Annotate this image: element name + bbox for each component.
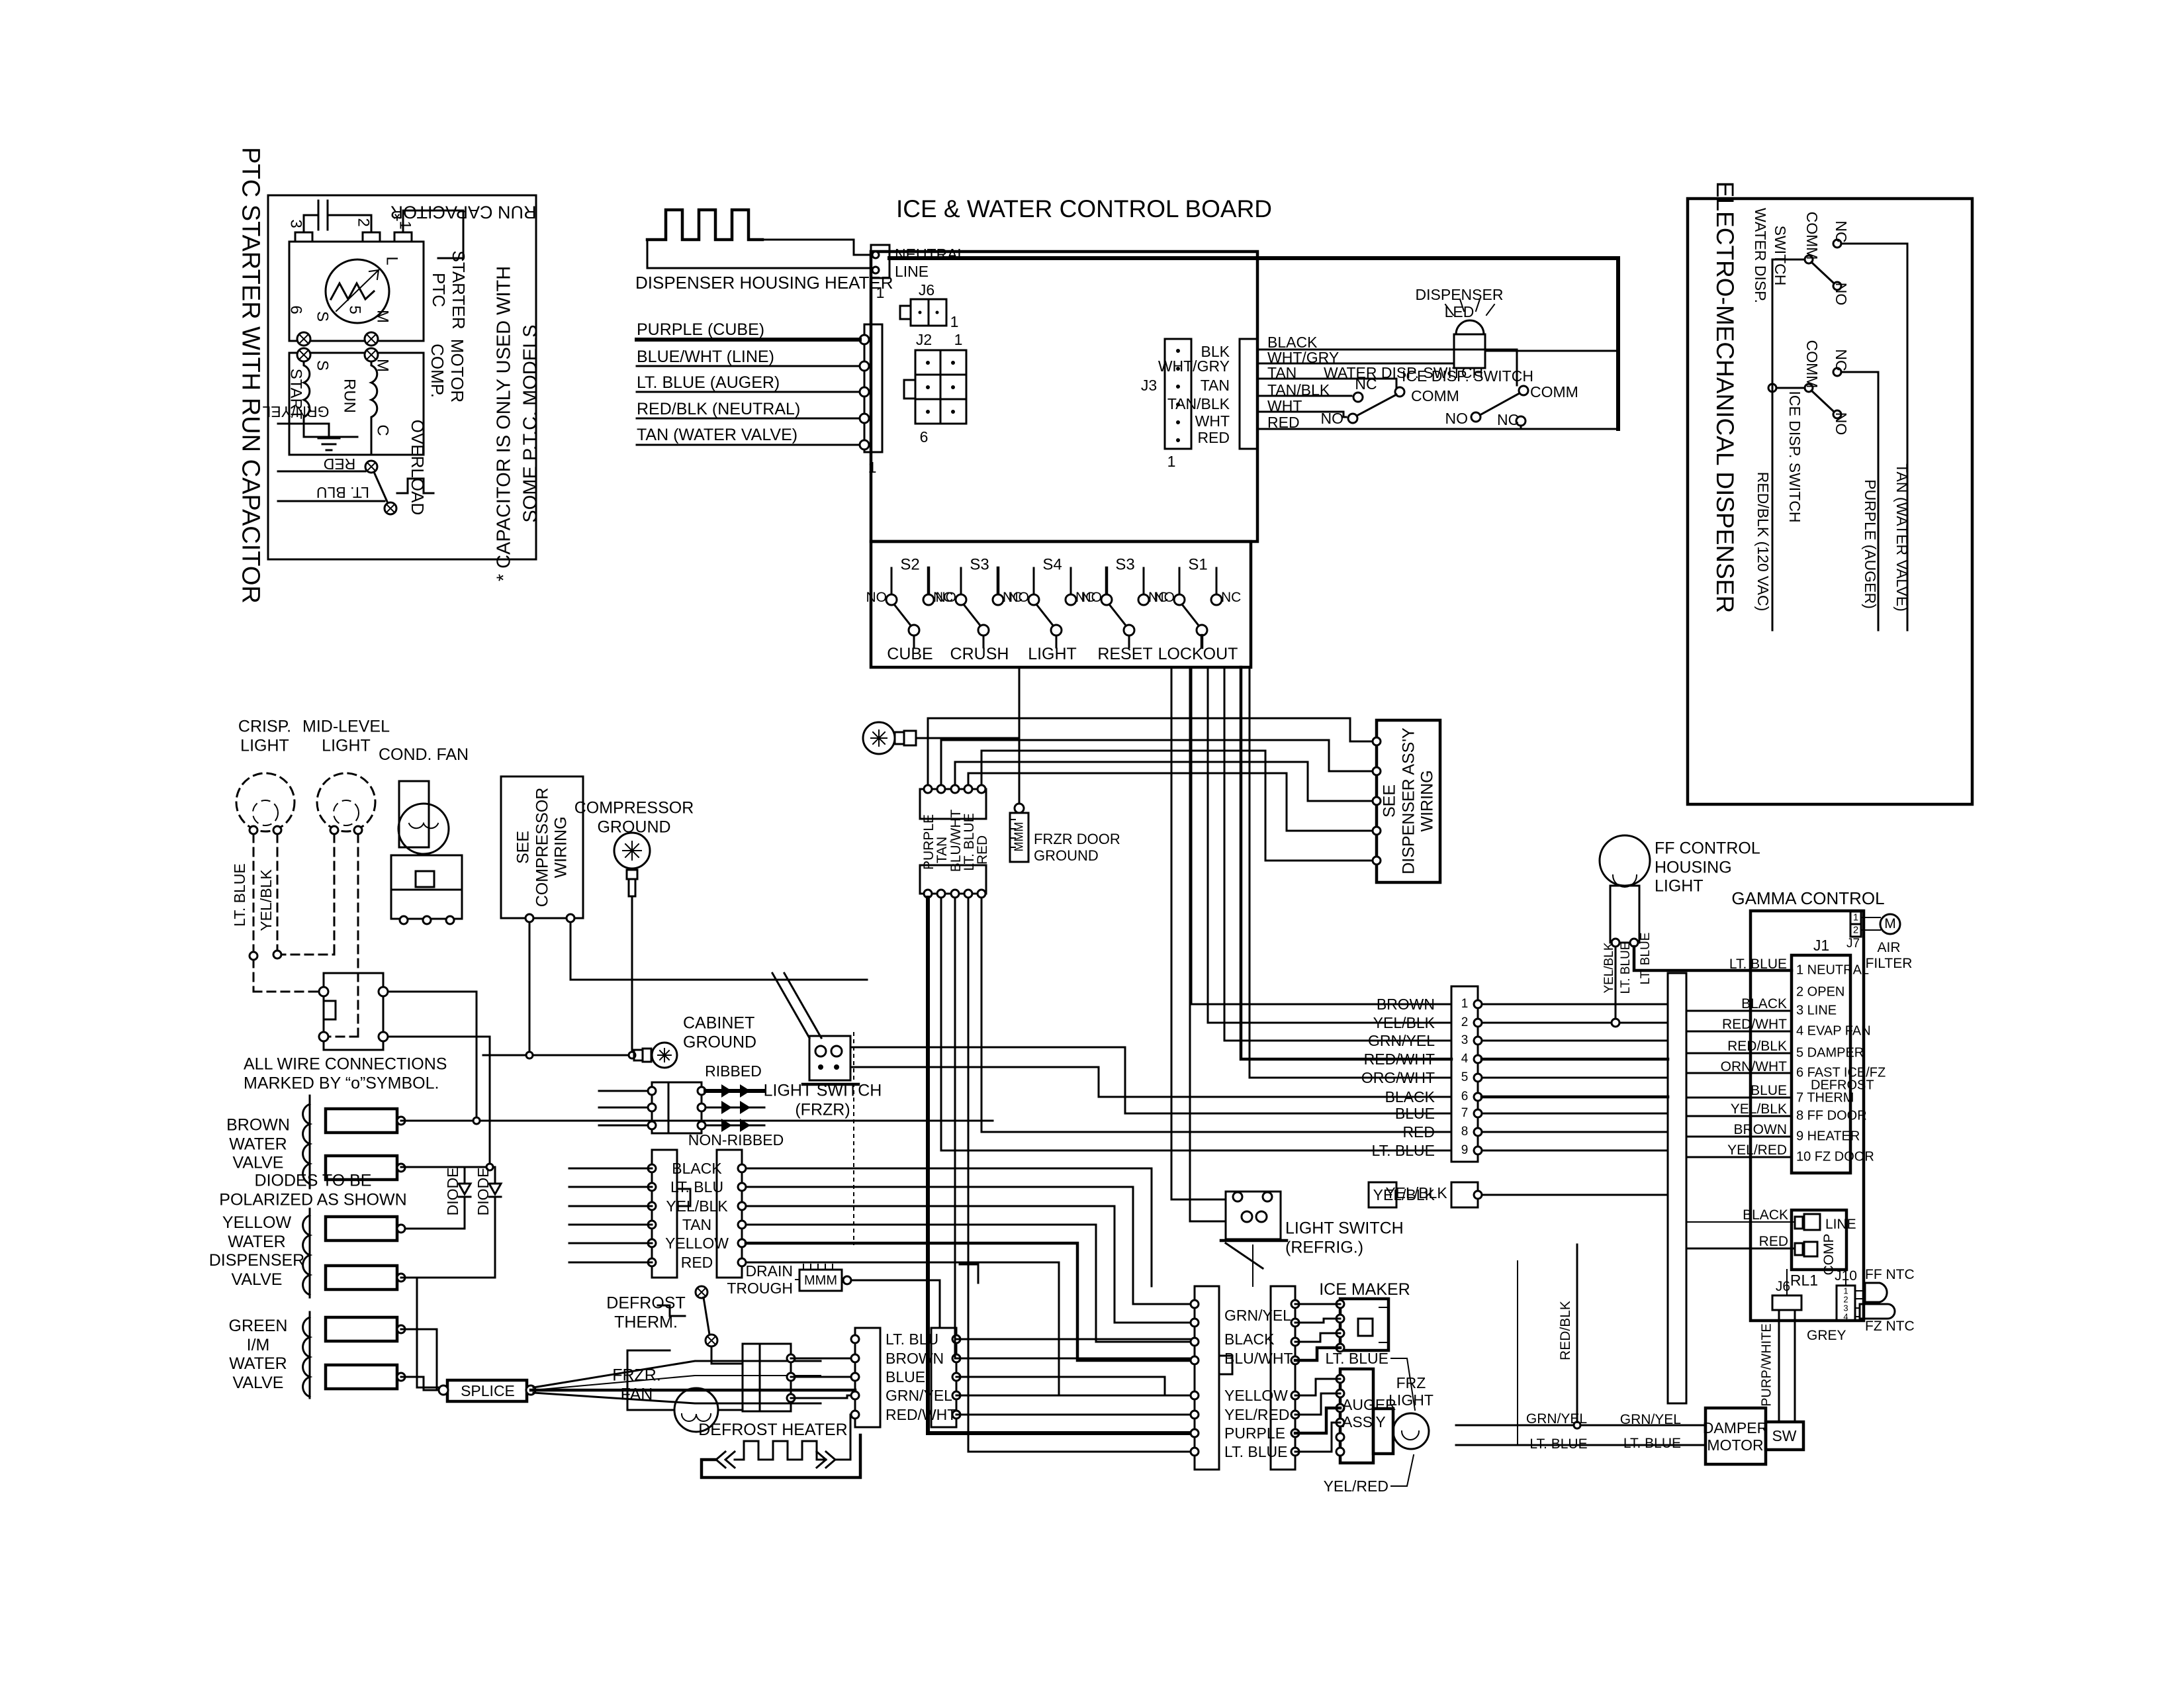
no-cube: NO <box>866 590 887 606</box>
nc-lockout: NC <box>1221 590 1241 606</box>
out-red: RED <box>1267 414 1300 431</box>
j1-label: J1 <box>1813 937 1829 954</box>
ffl-lt-blue: LT. BLUE <box>1619 942 1633 994</box>
run-grn-yel: GRN/YEL <box>1526 1411 1587 1427</box>
damper-grn-yel: GRN/YEL <box>1620 1412 1681 1428</box>
frz-light-label: FRZ LIGHT <box>1388 1374 1433 1409</box>
c-purple: PURPLE <box>1224 1425 1285 1442</box>
g-yel-blk: YEL/BLK <box>1731 1102 1787 1117</box>
nc-water-label: NC <box>1355 375 1377 393</box>
j1-row-2: 2 OPEN <box>1796 985 1844 1000</box>
cube-label: CUBE <box>887 645 933 664</box>
conn-red: RED <box>681 1254 713 1271</box>
em-red-blk: RED/BLK (120 VAC) <box>1754 472 1772 611</box>
c-blu-wht: BLU/WHT <box>1224 1350 1293 1367</box>
em-nc-1: NC <box>1833 220 1850 242</box>
no-reset: NO <box>1081 590 1103 606</box>
cap-note-line1: * CAPACITOR IS ONLY USED WITH <box>493 266 515 581</box>
diagram-labels-layer: PTC STARTER WITH RUN CAPACITORRUN CAPACI… <box>0 0 2184 1688</box>
board-title: ICE & WATER CONTROL BOARD <box>896 195 1272 223</box>
ffl-lt-blue-2: LT. BLUE <box>1639 933 1653 985</box>
j10-label: J10 <box>1835 1268 1857 1284</box>
j10-pin-4: 4 <box>1843 1313 1848 1323</box>
a-pin-2: 2 <box>1461 1015 1469 1030</box>
ptc-pin-2: 2 <box>354 218 372 226</box>
no-lockout: NO <box>1154 590 1175 606</box>
compressor-ground-label: COMPRESSOR GROUND <box>574 799 694 837</box>
g-brown: BROWN <box>1734 1122 1788 1138</box>
a-pin-7: 7 <box>1461 1106 1469 1121</box>
g-black: BLACK <box>1741 996 1787 1012</box>
conn-yellow: YELLOW <box>665 1235 729 1252</box>
em-comm-2: COMM <box>1803 340 1821 389</box>
c-yellow: YELLOW <box>1224 1387 1288 1404</box>
heater-conn-pin1: 1 <box>876 284 885 301</box>
mid-level-light-label: MID-LEVEL LIGHT <box>302 718 390 755</box>
a-pin-9: 9 <box>1461 1143 1469 1158</box>
em-water-disp-2: SWITCH <box>1772 226 1789 286</box>
light-switch-frzr-label: LIGHT SWITCH (FRZR) <box>764 1082 882 1119</box>
ptc-title: PTC STARTER WITH RUN CAPACITOR <box>236 147 264 604</box>
j1-row-5: 5 DAMPER <box>1796 1046 1864 1061</box>
comm-water-label: COMM <box>1411 387 1459 404</box>
lt-blue-callout: LT. BLUE <box>1326 1350 1388 1367</box>
em-no-1: NO <box>1833 283 1850 306</box>
ptc-terminal-m: M <box>373 310 391 323</box>
crush-label: CRUSH <box>950 645 1009 664</box>
j3-tan-blk: TAN/BLK <box>1167 395 1230 412</box>
g-red-wht: RED/WHT <box>1722 1017 1787 1033</box>
yellow-valve-label: YELLOW WATER DISPENSER VALVE <box>209 1213 304 1289</box>
j1-row-10: 10 FZ DOOR <box>1796 1150 1874 1165</box>
no-ice-label: NO <box>1445 410 1469 427</box>
no-crush: NO <box>936 590 957 606</box>
rl1-label: RL1 <box>1790 1272 1818 1289</box>
a-pin-1: 1 <box>1461 997 1469 1011</box>
no-light: NO <box>1009 590 1030 606</box>
ribbed-label: RIBBED <box>705 1062 762 1080</box>
lockout-label: LOCKOUT <box>1158 645 1238 664</box>
ptc-pin-1: 1 <box>396 220 414 229</box>
cabinet-ground-label: CABINET GROUND <box>683 1014 756 1052</box>
j2-pin1: 1 <box>954 331 963 348</box>
ptc-terminal-s: S <box>313 311 331 322</box>
a-brown: BROWN <box>1377 996 1435 1013</box>
a-pin-3: 3 <box>1461 1033 1469 1048</box>
j2-conn-pin1: 1 <box>868 459 877 476</box>
rl1-line: LINE <box>1825 1217 1856 1233</box>
g-red-blk: RED/BLK <box>1727 1039 1787 1055</box>
j2-pin6: 6 <box>920 428 929 445</box>
em-water-disp-1: WATER DISP. <box>1752 208 1769 303</box>
a-yel-blk: YEL/BLK <box>1373 1014 1435 1031</box>
ffl-yel-blk: YEL/BLK <box>1602 942 1617 993</box>
frzr-fan-label: FRZR. FAN <box>612 1366 661 1404</box>
c-grn-yel: GRN/YEL <box>1224 1307 1291 1324</box>
j1-row-4: 4 EVAP FAN <box>1796 1024 1871 1039</box>
a-blue: BLUE <box>1395 1105 1435 1122</box>
light-label: LIGHT <box>1028 645 1077 664</box>
switch-s3b: S3 <box>1115 555 1134 573</box>
conn-tan: TAN <box>682 1216 711 1233</box>
dh-blue: BLUE <box>886 1368 925 1385</box>
motor-terminal-s: S <box>313 360 331 371</box>
nc-ice-label: NC <box>1497 411 1519 428</box>
c-black: BLACK <box>1224 1331 1274 1348</box>
a-pin-5: 5 <box>1461 1070 1469 1085</box>
switch-s3a: S3 <box>970 555 989 573</box>
j3-red: RED <box>1197 429 1230 446</box>
c-yel-red: YEL/RED <box>1224 1406 1289 1423</box>
a-red-wht: RED/WHT <box>1364 1051 1435 1068</box>
defrost-therm-label: DEFROST THERM. <box>606 1294 685 1332</box>
motor-motor-label: MOTOR <box>447 339 467 402</box>
j2-label: J2 <box>916 331 932 348</box>
em-nc-2: NC <box>1833 349 1850 371</box>
ptc-starter-label-1: PTC <box>428 273 448 307</box>
j3-wht-gry: WHT/GRY <box>1158 357 1230 375</box>
sw-label: SW <box>1772 1427 1796 1444</box>
grey-label: GREY <box>1807 1328 1846 1344</box>
air-filter-m: M <box>1884 916 1896 932</box>
j6-board-label: J6 <box>919 281 934 299</box>
ice-maker-label: ICE MAKER <box>1319 1280 1410 1299</box>
em-title: ELECTRO-MECHANICAL DISPENSER <box>1711 181 1739 613</box>
rl1-red: RED <box>1759 1234 1788 1250</box>
dh-lt-blu: LT. BLU <box>886 1331 938 1348</box>
purp-white-label: PURP/WHITE <box>1760 1323 1775 1407</box>
motor-terminal-m: M <box>373 359 391 372</box>
em-no-2: NO <box>1833 412 1850 436</box>
conn-yel-blk: YEL/BLK <box>666 1197 727 1215</box>
switch-s2: S2 <box>900 555 919 573</box>
j7-label: J7 <box>1846 937 1860 951</box>
red-blk-neutral-label: RED/BLK (NEUTRAL) <box>637 400 800 419</box>
wiring-diagram-page: PTC STARTER WITH RUN CAPACITORRUN CAPACI… <box>0 0 2184 1688</box>
out-tan-blk: TAN/BLK <box>1267 381 1330 399</box>
em-ice-disp: ICE DISP. SWITCH <box>1786 391 1803 523</box>
em-comm-1: COMM <box>1803 212 1821 260</box>
purple-cube-label: PURPLE (CUBE) <box>637 320 764 340</box>
damper-motor-label: DAMPER MOTOR <box>1703 1419 1768 1454</box>
g-orn-wht: ORN/WHT <box>1721 1059 1787 1075</box>
frzr-door-mmm: MMM <box>1013 822 1026 852</box>
ptc-terminal-l: L <box>383 256 400 265</box>
out-wht: WHT <box>1267 397 1302 414</box>
a-red: RED <box>1402 1123 1435 1141</box>
brown-water-valve-label: BROWN WATER VALVE <box>226 1115 290 1172</box>
ptc-starter-label-2: STARTER <box>448 251 468 330</box>
g-lt-blue: LT. BLUE <box>1729 957 1787 972</box>
ff-light-label: FF CONTROL HOUSING LIGHT <box>1655 839 1760 896</box>
j1-row-9: 9 HEATER <box>1796 1129 1860 1145</box>
ice-disp-switch-label: ICE DISP. SWITCH <box>1402 367 1533 385</box>
j3-tan: TAN <box>1201 377 1230 394</box>
all-wire-note: ALL WIRE CONNECTIONS MARKED BY “o”SYMBOL… <box>244 1055 447 1093</box>
j6-board-pin1: 1 <box>950 313 959 330</box>
neutral-label: NEUTRAL <box>895 246 966 263</box>
j1-row-7: 7 THERM <box>1796 1091 1854 1106</box>
tan-water-valve-label: TAN (WATER VALVE) <box>637 426 797 445</box>
yel-blk-single: YEL/BLK <box>1373 1186 1435 1203</box>
dh-grn-yel: GRN/YEL <box>886 1387 952 1404</box>
a-lt-blue: LT. BLUE <box>1372 1142 1435 1159</box>
a-org-wht: ORG/WHT <box>1361 1069 1435 1086</box>
conn-black: BLACK <box>672 1160 721 1177</box>
a-pin-8: 8 <box>1461 1125 1469 1139</box>
a-pin-6: 6 <box>1461 1090 1469 1104</box>
rl1-black: BLACK <box>1743 1207 1788 1223</box>
frzr-door-ground-label: FRZR DOOR GROUND <box>1034 831 1120 864</box>
drain-mmm: MMM <box>804 1274 837 1289</box>
em-tan: TAN (WATER VALVE) <box>1893 463 1911 612</box>
run-lt-blue: LT. BLUE <box>1529 1436 1587 1452</box>
a-black: BLACK <box>1385 1088 1435 1105</box>
light-switch-refrig-label: LIGHT SWITCH (REFRIG.) <box>1285 1219 1404 1257</box>
diodes-note: DIODES TO BE POLARIZED AS SHOWN <box>219 1172 406 1209</box>
red-wire-label: RED <box>324 455 356 473</box>
yel-blk-crisp: YEL/BLK <box>257 869 275 931</box>
diode-2-label: DIODE <box>475 1168 492 1216</box>
crisp-light-label: CRISP. LIGHT <box>238 718 291 755</box>
conn-lt-blu: LT. BLU <box>670 1178 723 1196</box>
dispenser-housing-heater-label: DISPENSER HOUSING HEATER <box>635 273 893 293</box>
ff-ntc-label: FF NTC <box>1865 1267 1915 1283</box>
cond-fan-label: COND. FAN <box>379 745 469 765</box>
diode-1-label: DIODE <box>444 1168 461 1216</box>
a-pin-4: 4 <box>1461 1052 1469 1066</box>
comm-ice-label: COMM <box>1530 383 1578 400</box>
stack-red: RED <box>975 835 991 865</box>
dispenser-led-label: DISPENSER LED <box>1416 286 1504 320</box>
lt-blu-wire-label: LT. BLU <box>316 484 369 501</box>
j3-pin1: 1 <box>1167 453 1176 470</box>
motor-terminal-c: C <box>373 424 391 436</box>
grn-yel-wire-label: GRN/YEL <box>263 403 330 420</box>
j1-row-8: 8 FF DOOR <box>1796 1109 1867 1124</box>
lt-blue-crisp: LT. BLUE <box>231 863 248 926</box>
c-lt-blue: LT. BLUE <box>1224 1443 1287 1460</box>
j3-label: J3 <box>1141 377 1157 394</box>
see-dispenser-wiring: SEE DISPENSER ASS'Y WIRING <box>1380 727 1437 874</box>
drain-trough-label: DRAIN TROUGH <box>727 1262 793 1297</box>
motor-run-label: RUN <box>340 379 358 413</box>
non-ribbed-label: NON-RIBBED <box>688 1131 784 1149</box>
ptc-pin-3: 3 <box>287 219 304 228</box>
run-capacitor-label: RUN CAPACITOR <box>390 202 536 222</box>
j7-pin-2: 2 <box>1853 924 1858 935</box>
defrost-heater-label: DEFROST HEATER <box>698 1421 848 1440</box>
j1-row-3: 3 LINE <box>1796 1004 1837 1019</box>
switch-s1: S1 <box>1188 555 1207 573</box>
no-water-label: NO <box>1321 410 1344 427</box>
overload-label: OVERLOAD <box>407 420 427 516</box>
motor-comp-label: COMP. <box>427 344 447 398</box>
gamma-title: GAMMA CONTROL <box>1731 889 1884 909</box>
j1-row-1: 1 NEUTRAL <box>1796 963 1869 978</box>
em-purple: PURPLE (AUGER) <box>1862 479 1879 609</box>
g-yel-red: YEL/RED <box>1727 1143 1787 1158</box>
j7-pin-1: 1 <box>1853 912 1858 923</box>
dh-red-wht: RED/WHT <box>886 1406 956 1423</box>
out-tan: TAN <box>1267 364 1297 381</box>
switch-s4: S4 <box>1042 555 1062 573</box>
line-wire-label: LINE <box>895 263 929 280</box>
reset-label: RESET <box>1097 645 1152 664</box>
splice-label: SPLICE <box>461 1382 515 1399</box>
a-grn-yel: GRN/YEL <box>1368 1032 1435 1049</box>
red-blk-vertical: RED/BLK <box>1558 1301 1574 1360</box>
air-filter-label: AIR FILTER <box>1866 940 1913 972</box>
cap-note-line2: SOME P.T.C. MODELS <box>520 324 541 522</box>
damper-lt-blue: LT. BLUE <box>1623 1436 1681 1452</box>
fz-ntc-label: FZ NTC <box>1865 1319 1915 1335</box>
j6-gamma-label: J6 <box>1776 1279 1790 1295</box>
green-valve-label: GREEN I/M WATER VALVE <box>229 1317 288 1392</box>
ptc-pin-6: 6 <box>287 305 304 314</box>
blue-wht-line-label: BLUE/WHT (LINE) <box>637 348 774 367</box>
yel-red-callout: YEL/RED <box>1324 1477 1388 1495</box>
g-blue: BLUE <box>1751 1083 1787 1099</box>
dh-brown: BROWN <box>886 1350 944 1367</box>
lt-blue-auger-label: LT. BLUE (AUGER) <box>637 373 780 393</box>
j3-wht: WHT <box>1195 412 1230 430</box>
see-compressor-wiring: SEE COMPRESSOR WIRING <box>514 788 570 908</box>
ptc-pin-5: 5 <box>345 305 363 314</box>
